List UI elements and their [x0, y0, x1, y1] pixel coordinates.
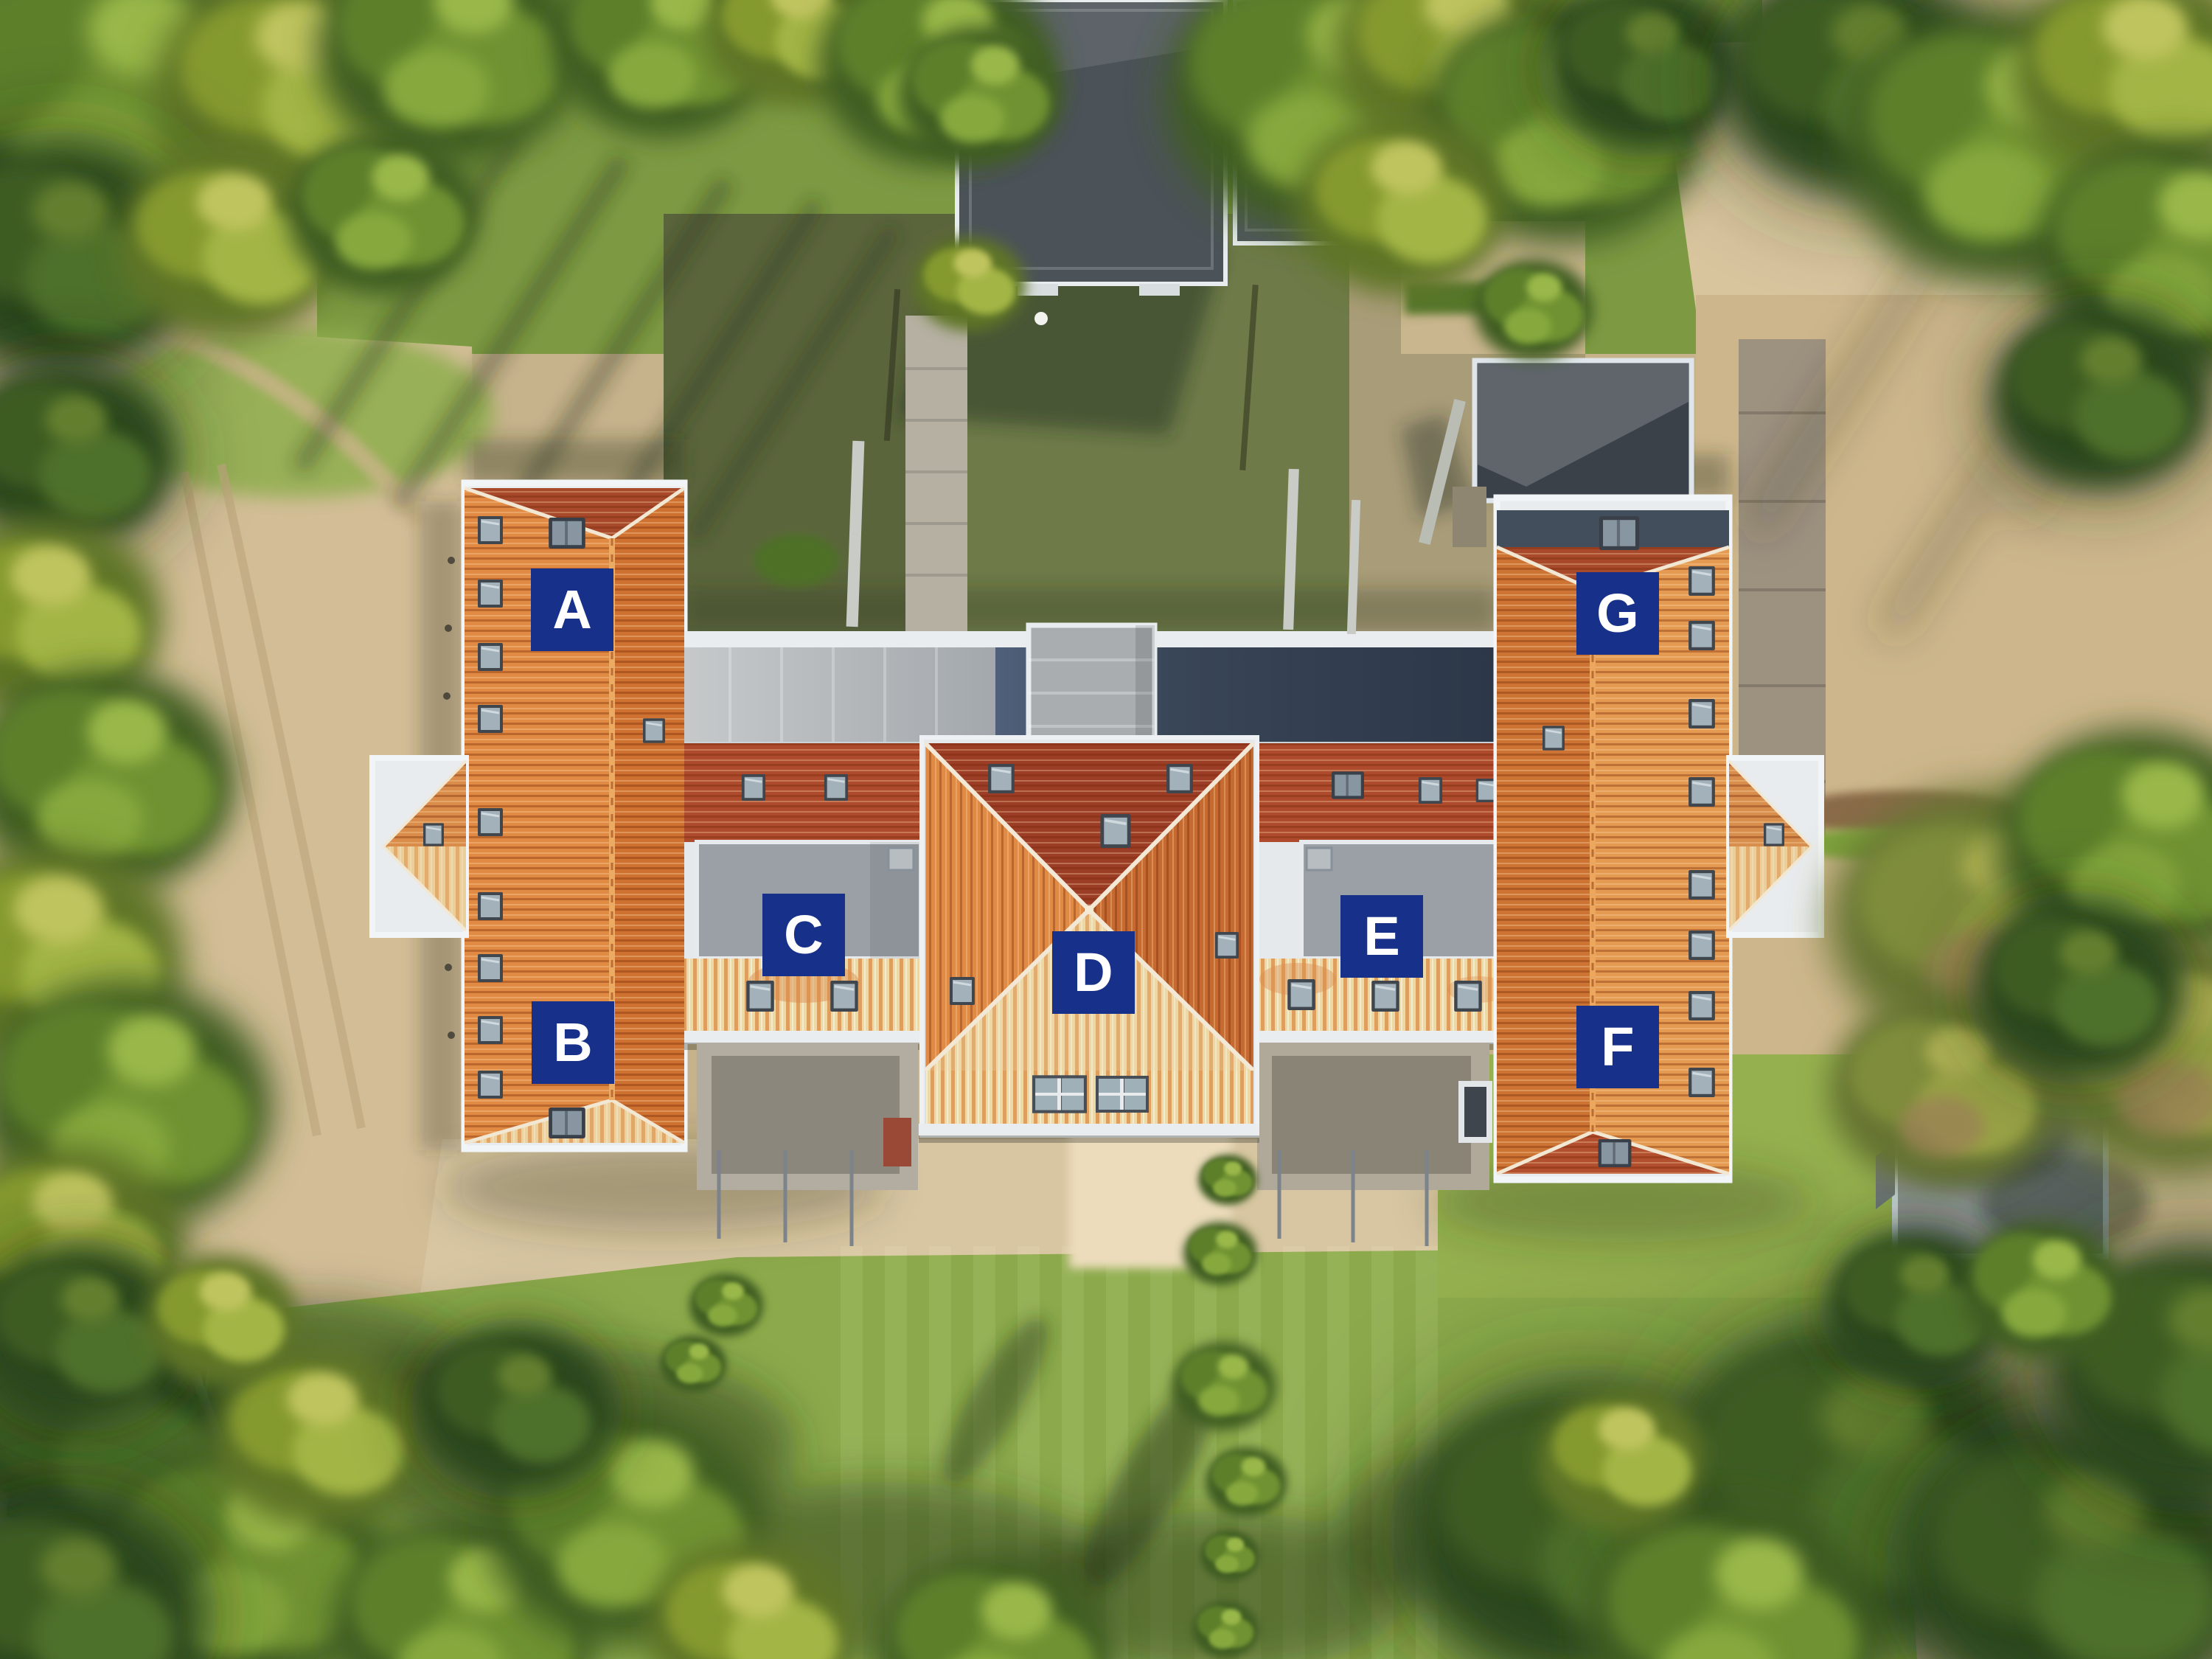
flat-roof-e	[1301, 842, 1497, 959]
house-d	[919, 737, 1259, 1143]
east-annex	[1729, 758, 1821, 935]
flat-roof-c	[697, 842, 921, 959]
aerial-photo	[0, 0, 2212, 1659]
screenshot-root: ABCDEFG	[0, 0, 2212, 1659]
west-annex	[372, 758, 466, 935]
